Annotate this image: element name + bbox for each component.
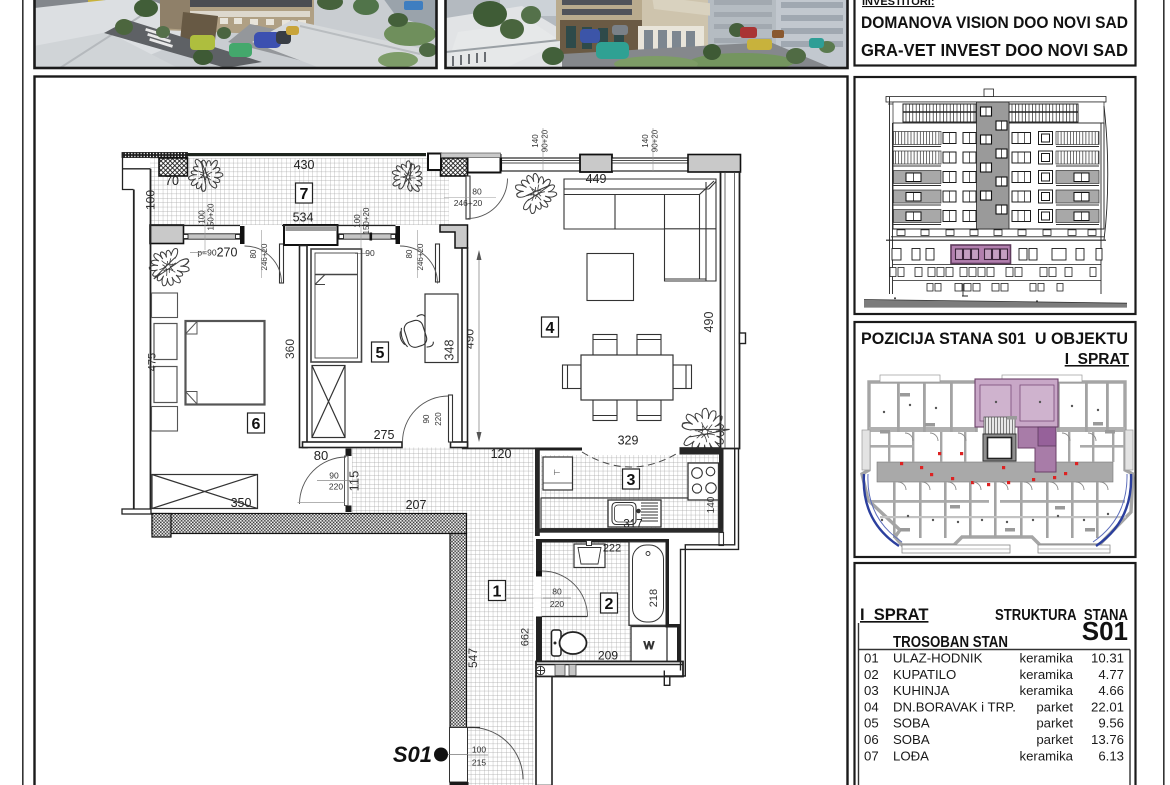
svg-text:SOBA: SOBA [893, 732, 930, 747]
svg-text:246+20: 246+20 [454, 198, 483, 208]
svg-text:keramika: keramika [1020, 651, 1074, 666]
svg-text:80: 80 [552, 587, 562, 597]
svg-text:04: 04 [864, 699, 879, 714]
svg-text:2: 2 [605, 596, 614, 613]
svg-text:KUPATILO: KUPATILO [893, 667, 956, 682]
svg-text:150+20: 150+20 [362, 207, 371, 234]
svg-text:10.31: 10.31 [1091, 651, 1124, 666]
svg-text:keramika: keramika [1020, 748, 1074, 763]
svg-text:317: 317 [623, 519, 642, 531]
svg-text:100: 100 [472, 745, 486, 755]
svg-text:100: 100 [353, 214, 362, 228]
svg-text:662: 662 [520, 628, 532, 646]
svg-text:INVESTITORI:: INVESTITORI: [862, 0, 935, 8]
svg-text:80: 80 [249, 249, 258, 258]
svg-text:TROSOBAN STAN: TROSOBAN STAN [893, 634, 1008, 651]
svg-text:ULAZ-HODNIK: ULAZ-HODNIK [893, 651, 983, 666]
svg-text:01: 01 [864, 651, 879, 666]
svg-text:120: 120 [491, 447, 512, 461]
svg-text:360: 360 [283, 339, 297, 359]
svg-text:S01: S01 [1082, 616, 1128, 646]
svg-text:150+20: 150+20 [207, 203, 216, 230]
svg-text:keramika: keramika [1020, 683, 1074, 698]
svg-text:220: 220 [329, 482, 343, 492]
svg-text:547: 547 [466, 648, 480, 668]
svg-text:KUHINJA: KUHINJA [893, 683, 950, 698]
svg-text:4.77: 4.77 [1098, 667, 1124, 682]
svg-text:80: 80 [314, 448, 328, 463]
svg-text:SOBA: SOBA [893, 716, 930, 731]
svg-text:keramika: keramika [1020, 667, 1074, 682]
svg-text:348: 348 [443, 340, 457, 361]
svg-text:220: 220 [434, 412, 443, 426]
svg-text:90+20: 90+20 [541, 129, 550, 152]
svg-text:GRA-VET INVEST DOO NOVI SAD: GRA-VET INVEST DOO NOVI SAD [861, 40, 1128, 60]
svg-text:350: 350 [231, 496, 252, 510]
svg-text:275: 275 [374, 428, 395, 442]
svg-text:80: 80 [405, 249, 414, 258]
svg-text:6.13: 6.13 [1098, 748, 1124, 763]
svg-text:POZICIJA STANA S01 U OBJEKTU: POZICIJA STANA S01 U OBJEKTU [861, 329, 1128, 348]
svg-text:9.56: 9.56 [1098, 716, 1124, 731]
svg-text:4.66: 4.66 [1098, 683, 1124, 698]
svg-text:115: 115 [347, 471, 362, 492]
svg-text:DOMANOVA VISION DOO NOVI SAD: DOMANOVA VISION DOO NOVI SAD [861, 14, 1128, 32]
svg-text:90: 90 [329, 471, 339, 481]
svg-text:209: 209 [598, 649, 618, 663]
svg-text:⊢: ⊢ [554, 468, 561, 477]
svg-text:W: W [644, 640, 655, 652]
svg-text:07: 07 [864, 748, 879, 763]
svg-text:329: 329 [618, 434, 639, 448]
svg-text:LOĐA: LOĐA [893, 748, 929, 763]
svg-text:534: 534 [293, 211, 314, 225]
svg-text:270: 270 [217, 246, 238, 260]
svg-text:parket: parket [1036, 732, 1073, 747]
svg-text:140: 140 [531, 134, 540, 148]
svg-text:90+20: 90+20 [651, 129, 660, 152]
svg-text:222: 222 [603, 543, 621, 555]
svg-text:490: 490 [702, 312, 716, 333]
svg-text:140: 140 [641, 134, 650, 148]
svg-text:207: 207 [406, 498, 427, 512]
svg-text:03: 03 [864, 683, 879, 698]
svg-text:06: 06 [864, 732, 879, 747]
svg-text:3: 3 [627, 472, 636, 489]
svg-text:S01: S01 [393, 742, 432, 767]
svg-text:70: 70 [165, 174, 179, 188]
svg-text:1: 1 [493, 584, 502, 601]
svg-text:430: 430 [294, 158, 315, 172]
svg-text:parket: parket [1036, 716, 1073, 731]
svg-text:218: 218 [648, 589, 660, 607]
svg-text:80: 80 [472, 187, 482, 197]
svg-text:140: 140 [706, 496, 717, 513]
svg-text:05: 05 [864, 716, 879, 731]
svg-text:02: 02 [864, 667, 879, 682]
svg-text:4: 4 [546, 320, 555, 337]
svg-text:5: 5 [376, 345, 385, 362]
svg-text:6: 6 [252, 416, 261, 433]
svg-text:7: 7 [300, 186, 309, 203]
svg-text:22.01: 22.01 [1091, 699, 1124, 714]
svg-text:I SPRAT: I SPRAT [1065, 351, 1130, 368]
svg-text:I SPRAT: I SPRAT [860, 606, 928, 624]
svg-text:13.76: 13.76 [1091, 732, 1124, 747]
svg-text:220: 220 [550, 599, 564, 609]
svg-text:215: 215 [472, 758, 486, 768]
svg-text:90: 90 [365, 248, 375, 258]
svg-text:DN.BORAVAK i TRP.: DN.BORAVAK i TRP. [893, 699, 1016, 714]
svg-text:90: 90 [422, 414, 431, 423]
svg-text:475: 475 [147, 353, 159, 371]
svg-text:parket: parket [1036, 699, 1073, 714]
